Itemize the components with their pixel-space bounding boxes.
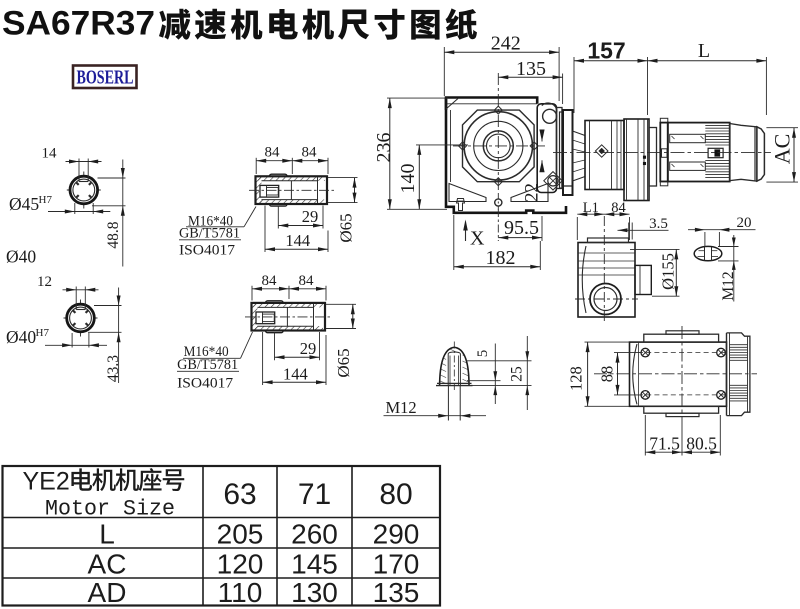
svg-text:M12: M12 xyxy=(386,398,417,417)
svg-text:88: 88 xyxy=(598,366,617,383)
svg-text:M12: M12 xyxy=(720,271,737,300)
svg-text:Ø45: Ø45 xyxy=(9,194,39,214)
svg-text:170: 170 xyxy=(373,549,420,580)
svg-text:43.3: 43.3 xyxy=(105,355,122,382)
svg-text:95.5: 95.5 xyxy=(504,217,539,239)
svg-text:236: 236 xyxy=(373,133,395,163)
svg-text:SA67R37: SA67R37 xyxy=(2,5,155,43)
svg-text:260: 260 xyxy=(291,519,338,550)
svg-text:140: 140 xyxy=(397,164,419,194)
svg-text:Ø155: Ø155 xyxy=(659,253,678,290)
svg-text:ISO4017: ISO4017 xyxy=(179,243,236,259)
svg-text:12: 12 xyxy=(37,274,52,290)
svg-text:71: 71 xyxy=(298,478,331,511)
svg-text:X: X xyxy=(470,228,485,250)
svg-text:H7: H7 xyxy=(36,327,50,339)
svg-text:110: 110 xyxy=(218,577,263,608)
svg-text:5: 5 xyxy=(475,350,491,358)
svg-text:20: 20 xyxy=(737,215,752,231)
svg-text:63: 63 xyxy=(223,478,256,511)
svg-text:BOSERL: BOSERL xyxy=(77,67,134,89)
svg-text:182: 182 xyxy=(486,247,516,269)
svg-text:71.5: 71.5 xyxy=(649,433,680,453)
svg-text:84: 84 xyxy=(265,145,281,161)
svg-text:GB/T5781: GB/T5781 xyxy=(177,357,238,373)
svg-text:120: 120 xyxy=(217,549,264,580)
svg-text:14: 14 xyxy=(42,146,58,162)
svg-text:145: 145 xyxy=(291,549,338,580)
svg-text:29: 29 xyxy=(300,339,317,358)
svg-text:L1: L1 xyxy=(583,200,599,216)
svg-text:ISO4017: ISO4017 xyxy=(177,376,234,392)
svg-text:L: L xyxy=(698,40,710,62)
svg-text:84: 84 xyxy=(611,200,626,216)
svg-text:80: 80 xyxy=(379,478,412,511)
svg-text:135: 135 xyxy=(516,58,546,80)
svg-text:128: 128 xyxy=(567,366,586,391)
svg-text:Ø40: Ø40 xyxy=(6,247,36,267)
svg-text:84: 84 xyxy=(299,273,315,289)
svg-text:48.8: 48.8 xyxy=(105,221,122,248)
svg-text:144: 144 xyxy=(285,231,310,250)
svg-text:Ø40: Ø40 xyxy=(6,327,36,347)
svg-text:3.5: 3.5 xyxy=(649,216,668,232)
svg-text:205: 205 xyxy=(217,519,264,550)
svg-text:Ø65: Ø65 xyxy=(337,213,356,242)
svg-text:80.5: 80.5 xyxy=(686,433,717,453)
svg-text:L: L xyxy=(99,519,115,550)
svg-text:AC: AC xyxy=(88,549,127,580)
svg-text:GB/T5781: GB/T5781 xyxy=(179,226,240,242)
svg-text:AC: AC xyxy=(770,134,795,165)
svg-text:29: 29 xyxy=(302,207,319,226)
svg-text:84: 84 xyxy=(262,273,278,289)
svg-text:144: 144 xyxy=(283,364,308,383)
svg-text:H7: H7 xyxy=(39,194,53,206)
svg-text:157: 157 xyxy=(587,38,625,64)
svg-text:84: 84 xyxy=(302,145,318,161)
svg-text:AD: AD xyxy=(88,577,127,608)
svg-text:130: 130 xyxy=(291,577,338,608)
svg-text:135: 135 xyxy=(373,577,420,608)
svg-text:242: 242 xyxy=(491,33,521,55)
svg-text:22: 22 xyxy=(522,183,543,202)
svg-text:25: 25 xyxy=(509,366,526,382)
svg-text:YE2: YE2 xyxy=(23,468,70,496)
svg-text:Ø65: Ø65 xyxy=(334,348,353,377)
svg-text:290: 290 xyxy=(373,519,420,550)
